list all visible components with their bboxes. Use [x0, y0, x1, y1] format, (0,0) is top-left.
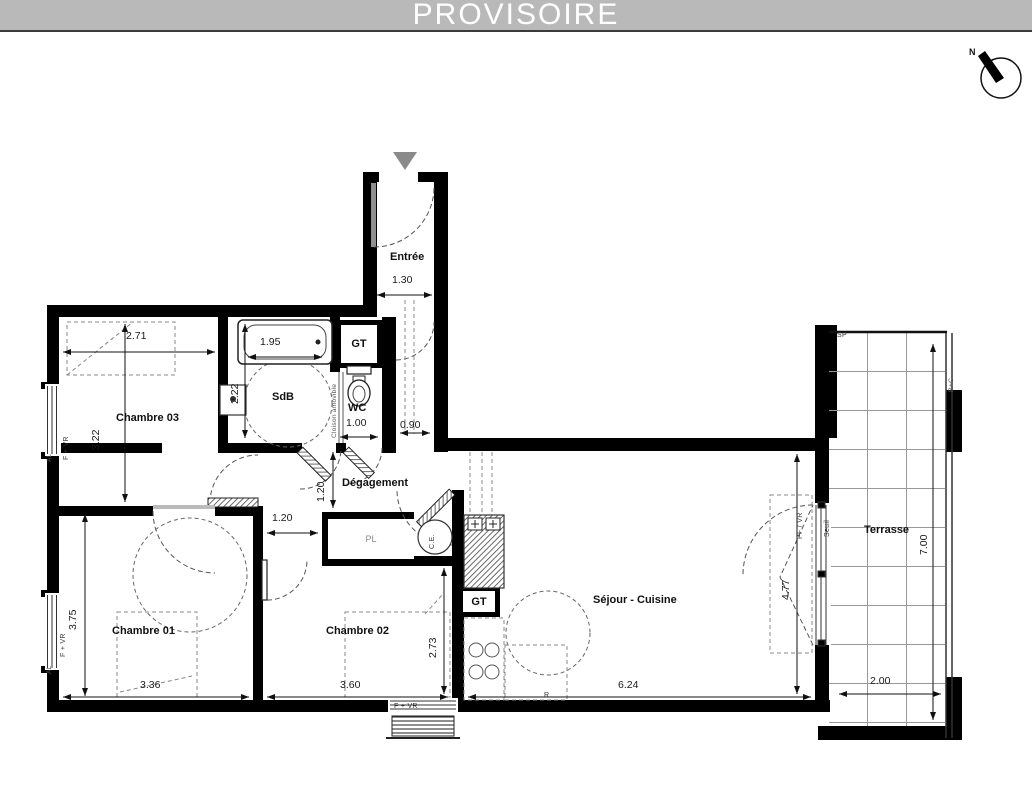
- wall: [218, 317, 228, 453]
- dim-degagement-largeur: 1.20: [272, 512, 292, 524]
- door-leaf: [297, 447, 331, 481]
- turning-circle-ch01: [133, 518, 247, 632]
- window-tag-baie: PF / VR: [797, 512, 804, 539]
- wall: [434, 438, 829, 451]
- window-tag-ch02: F + VR: [394, 703, 418, 710]
- compass-icon: [978, 51, 1021, 98]
- wall: [434, 172, 448, 452]
- room-label-chambre03: Chambre 03: [116, 412, 179, 424]
- sink-basins: [468, 518, 500, 530]
- sink-unit: [464, 515, 504, 588]
- dim-degagement-profondeur: 1.20: [315, 482, 327, 502]
- turning-circle-sdb: [244, 359, 332, 447]
- wall: [815, 448, 829, 505]
- wall: [215, 506, 263, 516]
- room-label-sdb: SdB: [272, 391, 294, 403]
- wall: [47, 700, 830, 712]
- placard-label: PL: [365, 534, 376, 544]
- room-label-chambre02: Chambre 02: [326, 625, 389, 637]
- room-label-entree: Entrée: [390, 251, 424, 263]
- cooktop: [469, 643, 499, 679]
- dim-chambre03-largeur: 2.71: [126, 330, 146, 342]
- wall: [382, 317, 396, 453]
- terrace-post: [946, 677, 962, 740]
- wall: [818, 726, 962, 740]
- banner-title: PROVISOIRE: [413, 0, 620, 30]
- kitchen-island: [505, 645, 567, 700]
- entrance-marker: [393, 152, 417, 170]
- gt-sdb-label: GT: [351, 338, 366, 350]
- door-swing-arcs: [153, 187, 813, 645]
- dim-chambre02-profondeur: 2.73: [427, 638, 439, 658]
- door-swing-arc: [396, 322, 434, 360]
- wall: [363, 172, 377, 317]
- allege-tag-ch03: AL: [46, 453, 53, 462]
- wall: [47, 305, 375, 317]
- dim-baignoire: 1.95: [260, 336, 280, 348]
- duct-gt-sdb: GT: [336, 320, 382, 368]
- closet-placard: PL: [322, 512, 414, 566]
- door-swing-arc: [374, 187, 434, 247]
- provisoire-banner: PROVISOIRE: [0, 0, 1032, 32]
- door-leaf: [343, 447, 374, 478]
- window-tag-ch01: F + VR: [60, 633, 67, 657]
- dim-terrasse-largeur: 2.00: [870, 675, 890, 687]
- window-sill: [392, 716, 454, 736]
- window-nub: [41, 382, 49, 389]
- wall: [336, 443, 346, 453]
- refrigerateur-tag: R: [544, 692, 549, 699]
- dim-sejour-profondeur: 4.77: [780, 580, 792, 600]
- door-leaf: [153, 505, 215, 509]
- seuil-tag: Seuil: [824, 520, 831, 537]
- window-tag-ch03: F + VR: [63, 436, 70, 460]
- door-swing-arc: [210, 455, 258, 503]
- sp-tag: SP: [837, 332, 847, 339]
- room-label-wc: WC: [348, 402, 366, 414]
- door-leaf: [417, 489, 455, 527]
- dim-chambre01-largeur: 3.36: [140, 679, 160, 691]
- dim-entree-largeur: 1.30: [392, 274, 412, 286]
- room-label-chambre01: Chambre 01: [112, 625, 175, 637]
- wardrobe-ch03: [67, 322, 175, 375]
- cloison-amovible-tag: Cloison amovible: [331, 384, 338, 438]
- gt-cuisine-label: GT: [471, 596, 486, 608]
- dim-terrasse-profondeur: 7.00: [918, 535, 930, 555]
- room-label-degagement: Dégagement: [342, 477, 408, 489]
- wall: [253, 516, 263, 700]
- dim-chambre02-largeur: 3.60: [340, 679, 360, 691]
- dim-couloir-largeur: 0.90: [400, 419, 420, 431]
- window-nub: [41, 590, 49, 597]
- wall: [228, 443, 302, 453]
- bathtub: [238, 320, 332, 364]
- allege-tag-ch01: AL: [46, 665, 53, 674]
- kitchen-counter: [464, 618, 504, 700]
- floor-plan-page: PROVISOIRE N GT GT PL: [0, 0, 1032, 800]
- terrace-post: [946, 390, 962, 452]
- wall: [363, 172, 379, 182]
- dim-chambre03-profondeur: 3.22: [90, 430, 102, 450]
- dim-chambre01-profondeur: 3.75: [67, 610, 79, 630]
- wall: [815, 643, 829, 712]
- room-label-terrasse: Terrasse: [864, 524, 909, 536]
- wall: [59, 506, 153, 516]
- room-label-sejour: Séjour - Cuisine: [593, 594, 677, 606]
- door-swing-arc: [267, 560, 307, 600]
- turning-circle-sejour: [506, 591, 590, 675]
- wall: [59, 443, 162, 453]
- dimension-lines: [63, 295, 941, 720]
- wall: [47, 305, 59, 712]
- door-swing-arc: [153, 511, 215, 573]
- dim-sejour-largeur: 6.24: [618, 679, 638, 691]
- dim-sdb-profondeur: 2.22: [229, 384, 241, 404]
- dim-wc-largeur: 1.00: [346, 417, 366, 429]
- duct-gt-cuisine: GT: [458, 586, 500, 617]
- wall: [418, 172, 448, 182]
- north-label: N: [969, 47, 976, 57]
- toilet: [347, 366, 371, 406]
- bay-outline: [770, 495, 812, 653]
- releve-chute-tag: R+C: [948, 378, 955, 392]
- chauffe-eau-tag: C.E.: [429, 534, 436, 549]
- movable-partition: [339, 372, 343, 443]
